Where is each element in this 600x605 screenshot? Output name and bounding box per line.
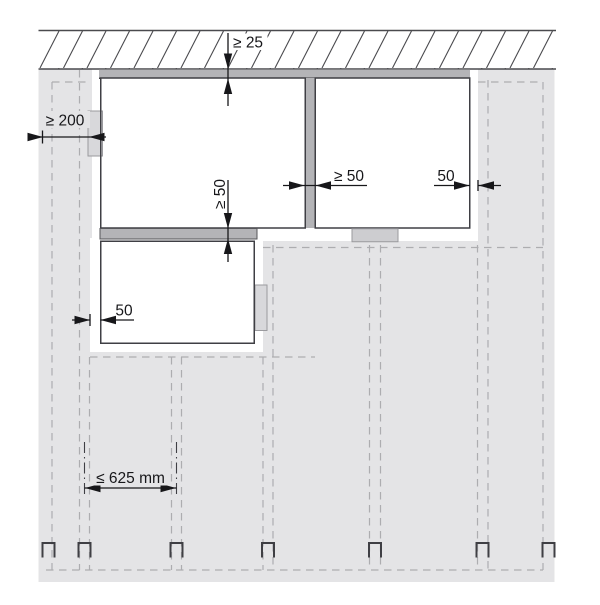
dim-label-edge-distance: ≥ 200 [46, 113, 85, 130]
dim-label-ceiling-gap: ≥ 25 [233, 35, 263, 52]
bottom-rail [100, 229, 257, 240]
divider-bar [305, 78, 315, 228]
dim-label-lowerbox-gap: 50 [115, 303, 133, 320]
ceiling-hatch [39, 31, 557, 69]
dim-label-right-gap: 50 [437, 168, 455, 185]
dim-label-horizontal-gap: ≥ 50 [334, 168, 364, 185]
dim-label-stud-spacing: ≤ 625 mm [96, 470, 165, 487]
upper-left-box [101, 78, 306, 228]
top-rail [99, 70, 470, 79]
mounting-tab-bottom [352, 229, 398, 242]
clearance-diagram: ≥ 25 ≥ 200 ≥ 50 ≥ 50 50 50 ≤ 625 mm [0, 0, 600, 600]
upper-right-box [315, 78, 470, 228]
lower-box [101, 241, 255, 343]
diagram-canvas: ≥ 25 ≥ 200 ≥ 50 ≥ 50 50 50 ≤ 625 mm [0, 0, 600, 600]
mounting-tab-right [255, 285, 267, 331]
ceiling-hatch-band [39, 31, 557, 70]
dim-label-vertical-gap: ≥ 50 [212, 179, 229, 209]
